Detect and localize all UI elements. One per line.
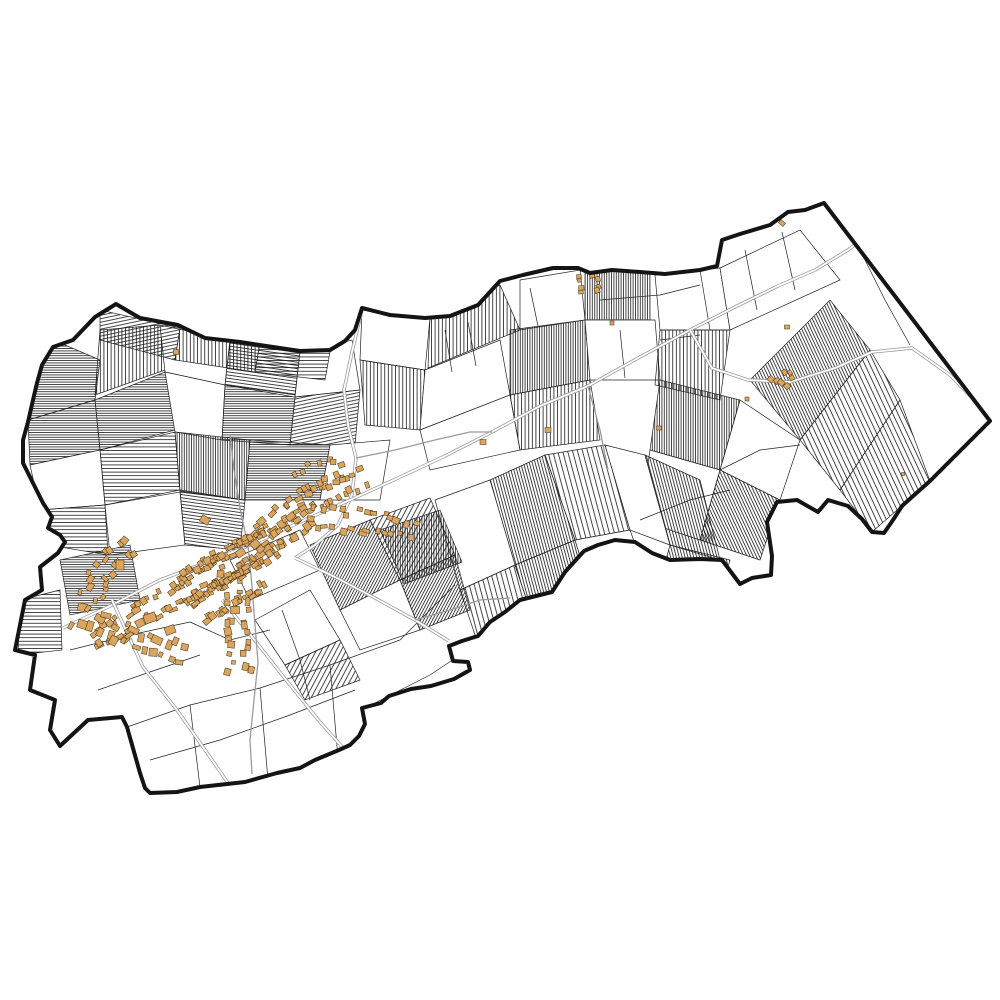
building xyxy=(320,524,327,528)
building xyxy=(231,607,240,614)
building xyxy=(231,660,235,664)
cadastral-map xyxy=(0,0,1000,1000)
building xyxy=(333,480,340,485)
building xyxy=(578,290,583,294)
building xyxy=(248,666,255,674)
building xyxy=(343,513,348,519)
building xyxy=(217,570,224,577)
building xyxy=(225,619,230,626)
building xyxy=(311,504,316,510)
building xyxy=(545,428,551,433)
building xyxy=(610,321,614,325)
building xyxy=(116,560,124,570)
building xyxy=(577,278,581,283)
building xyxy=(480,440,486,445)
building xyxy=(240,650,246,656)
building xyxy=(149,648,158,656)
building xyxy=(409,534,414,540)
cadastral-map-page xyxy=(0,0,1000,1000)
building xyxy=(224,592,230,600)
building xyxy=(370,511,377,515)
building xyxy=(329,504,337,511)
building xyxy=(376,528,381,534)
building xyxy=(224,627,232,636)
building xyxy=(340,506,346,513)
building xyxy=(224,601,230,606)
building xyxy=(245,645,251,651)
building xyxy=(237,599,242,604)
building xyxy=(142,646,148,654)
parcel-field xyxy=(175,432,250,500)
map-content xyxy=(15,203,990,793)
building xyxy=(224,668,232,676)
building xyxy=(657,426,662,430)
building xyxy=(246,639,251,645)
building xyxy=(858,544,862,547)
building xyxy=(226,651,232,656)
building xyxy=(339,477,346,483)
building xyxy=(349,473,355,478)
building xyxy=(579,286,585,291)
building xyxy=(237,590,242,594)
building xyxy=(340,528,348,536)
building xyxy=(93,597,98,603)
building xyxy=(246,607,251,612)
building xyxy=(902,473,905,476)
building xyxy=(398,531,403,536)
building xyxy=(138,633,145,642)
parcel-field xyxy=(245,440,330,500)
building xyxy=(181,643,189,651)
building xyxy=(745,397,749,401)
building xyxy=(307,516,314,522)
building xyxy=(785,325,790,329)
building xyxy=(241,621,247,629)
building xyxy=(595,276,600,282)
parcel-field xyxy=(585,320,660,380)
parcel-field xyxy=(655,268,730,330)
parcel-field xyxy=(360,360,425,430)
building xyxy=(321,476,328,483)
building xyxy=(228,641,235,649)
building xyxy=(78,589,83,595)
building xyxy=(174,350,179,355)
building xyxy=(175,660,183,666)
building xyxy=(245,629,251,634)
building xyxy=(357,507,363,512)
building xyxy=(329,524,335,530)
building xyxy=(330,459,336,465)
